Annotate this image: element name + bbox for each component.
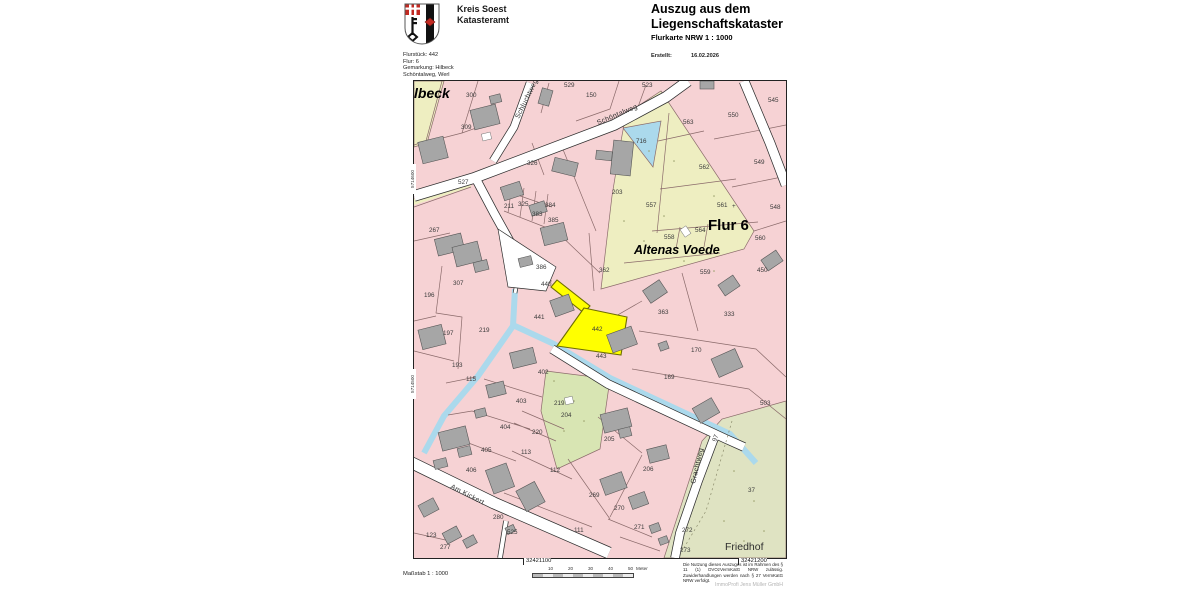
parcel-number: 115 [466,376,477,383]
parcel-number: 277 [440,544,451,551]
parcel-number: 113 [521,449,532,456]
cadastral-map: SchluchtwegSchöntalwegAm KickertGrachtwe… [414,81,786,558]
parcel-number: 441 [534,314,545,321]
parcel-number: 220 [532,429,543,436]
parcel-number: 219 [554,400,565,407]
parcel-number: 203 [612,189,623,196]
parcel-number: 204 [561,412,572,419]
parcel-number: 563 [683,119,694,126]
authority-name: Kreis Soest Katasteramt [457,4,509,26]
created-row: Erstellt: 16.02.2026 [651,53,672,59]
parcel-number: 333 [724,311,735,318]
parcel-number: 385 [548,217,559,224]
parcel-number: 549 [754,159,765,166]
document-title-line1: Auszug aus dem [651,2,783,17]
parcel-number: 363 [658,309,669,316]
parcel-number: 270 [614,505,625,512]
parcel-number: 197 [443,330,454,337]
parcel-number: 307 [453,280,464,287]
parcel-number: 269 [589,492,600,499]
kreis-soest-wappen-icon [403,2,441,46]
parcel-number: 548 [770,204,781,211]
parcel-number: 309 [461,124,472,131]
scale-tick: 20 [568,566,573,571]
parcel-number: 150 [586,92,597,99]
created-date: 16.02.2026 [691,53,719,59]
parcel-number: 545 [768,97,779,104]
document-subtitle: Flurkarte NRW 1 : 1000 [651,33,733,42]
grid-coord-left-north: 5714600 [410,164,416,194]
parcel-number: 405 [481,447,492,454]
parcel-number: 219 [479,327,490,334]
parcel-number: 280 [493,514,504,521]
scale-tick: 40 [608,566,613,571]
scale-tick: 50 [628,566,633,571]
area-label: Altenas Voede [633,243,720,257]
document-title: Auszug aus dem Liegenschaftskataster [651,2,783,32]
parcel-number: 211 [504,203,515,210]
watermark: ImmoProfi Jens Müller GmbH [715,582,783,588]
legal-notice: Die Nutzung dieses Auszuges ist im Rahme… [683,562,783,584]
parcel-number: 205 [604,436,615,443]
parcel-number: 716 [636,138,647,145]
parcel-number: 326 [527,160,538,167]
created-label: Erstellt: [651,53,672,59]
parcel-number: 529 [564,82,575,89]
parcel-number: 123 [426,532,437,539]
authority-line1: Kreis Soest [457,4,509,15]
scale-unit: Meter [636,566,648,571]
parcel-number: + [732,203,736,210]
parcel-number: 443 [596,353,607,360]
parcel-number: 273 [680,547,691,554]
area-label: Hilbeck [414,85,451,101]
parcel-number: 402 [538,369,549,376]
parcel-number: 37 [748,487,756,494]
parcel-number: 527 [458,179,469,186]
parcel-number: 170 [691,347,702,354]
parcel-number: 196 [424,292,435,299]
parcel-number: 442 [592,326,603,333]
grid-coord-left-south: 5714500 [410,369,416,399]
parcel-number: 169 [664,374,675,381]
parcel-number: 271 [634,524,645,531]
parcel-number: 111 [574,527,584,534]
parcel-info-strasse: Schöntalweg, Werl [403,72,454,79]
parcel-number: 404 [500,424,511,431]
parcel-number: 406 [466,467,477,474]
parcel-number: 384 [545,202,556,209]
parcel-number: 562 [699,164,710,171]
parcel-number: 557 [646,202,657,209]
parcel-number: 193 [452,362,463,369]
parcel-number: 403 [516,398,527,405]
parcel-number: 440 [541,281,552,288]
parcel-number: 383 [532,211,543,218]
parcel-number: 325 [518,201,529,208]
parcel-number: 523 [642,82,653,89]
parcel-number: 525 [507,529,518,536]
parcel-number: 267 [429,227,440,234]
parcel-number: 300 [466,92,477,99]
kataster-extract-page: Kreis Soest Katasteramt Flurstück: 442 F… [395,0,805,600]
parcel-info-gemarkung: Gemarkung: Hilbeck [403,65,454,72]
parcel-number: 362 [599,267,610,274]
scale-tick: 30 [588,566,593,571]
scale-label: Maßstab 1 : 1000 [403,571,448,577]
area-label: Flur 6 [708,217,749,234]
area-label: Friedhof [725,541,764,553]
parcel-number: 559 [700,269,711,276]
scale-bar: 1020304050 Meter [532,566,662,582]
parcel-number: 558 [664,234,675,241]
parcel-number: 561 [717,202,728,209]
parcel-number: 564 [695,227,706,234]
parcel-number: 386 [536,264,547,271]
parcel-number: 272 [682,527,693,534]
authority-line2: Katasteramt [457,15,509,26]
parcel-info-flur: Flur: 6 [403,59,454,66]
parcel-info-block: Flurstück: 442 Flur: 6 Gemarkung: Hilbec… [403,52,454,78]
parcel-number: 112 [550,467,561,474]
parcel-number: 503 [760,400,771,407]
parcel-info-flurstueck: Flurstück: 442 [403,52,454,59]
scale-bar-rule [532,573,634,578]
scale-tick: 10 [548,566,553,571]
parcel-number: 560 [755,235,766,242]
grid-coord-bottom-west: 32421100 [523,558,551,565]
parcel-number: 450 [757,267,768,274]
map-frame: SchluchtwegSchöntalwegAm KickertGrachtwe… [413,80,787,559]
document-title-line2: Liegenschaftskataster [651,17,783,32]
parcel-number: 550 [728,112,739,119]
parcel-number: 206 [643,466,654,473]
